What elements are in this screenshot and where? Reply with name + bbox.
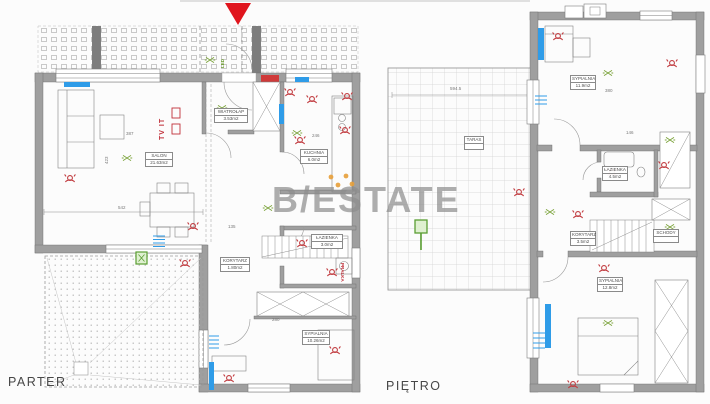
bed	[545, 26, 573, 62]
garden-terrace	[45, 256, 203, 387]
entrance-marker-icon	[225, 3, 251, 25]
floor-label-pietro: PIĘTRO	[386, 379, 442, 393]
radiator-icon	[295, 77, 309, 82]
light-point-icon	[292, 130, 302, 135]
fixture-icon	[188, 222, 199, 230]
fixture-icon	[330, 346, 341, 354]
wardrobe	[257, 292, 349, 316]
coffee-table	[100, 115, 124, 139]
room-label-lazienka-pietro: ŁAZIENKA 4.5m2	[602, 166, 628, 181]
fixture-icon	[573, 210, 584, 218]
chimney	[565, 6, 583, 18]
dining-table	[140, 183, 194, 237]
radiator-icon	[209, 362, 214, 390]
window	[696, 55, 705, 93]
fixture-icon	[285, 88, 296, 96]
radiator-icon	[538, 28, 544, 60]
room-label-taras-pietro: TARAS	[464, 136, 484, 150]
chimney	[584, 4, 606, 18]
radiator-icon	[64, 82, 90, 87]
dimension-text: 423	[104, 156, 109, 164]
dimension-text: 280	[272, 317, 280, 322]
wardrobe	[652, 199, 690, 220]
porch-column	[92, 26, 101, 73]
floorplan-sheet: SALON 21.63m2 WIATROŁAP 3.53m2 KUCHNIA 6…	[0, 0, 710, 404]
stairs	[590, 220, 654, 252]
desk	[212, 356, 246, 371]
floor-label-parter: PARTER	[8, 375, 67, 389]
room-label-sypialnia1-pietro: SYPIALNIA 11.9m2	[570, 75, 596, 90]
wardrobe	[253, 82, 280, 131]
cropped-dimension-line	[180, 0, 530, 2]
window	[56, 69, 160, 82]
radiator-icon	[279, 104, 284, 124]
fixture-icon	[553, 32, 564, 40]
dimension-text: 542	[118, 205, 126, 210]
light-point-icon	[545, 209, 555, 214]
radiator-icon	[545, 304, 551, 348]
porch-column	[252, 26, 261, 73]
fixture-icon	[65, 174, 76, 182]
room-label-schody-pietro: SCHODY	[653, 229, 679, 243]
fixture-icon	[295, 136, 306, 144]
room-label-korytarz-parter: KORYTARZ 1.80m2	[220, 257, 250, 272]
window	[600, 384, 634, 392]
room-label-salon: SALON 21.63m2	[145, 152, 173, 167]
room-label-sypialnia-parter: SYPIALNIA 10.26m2	[302, 330, 330, 345]
room-label-kuchnia: KUCHNIA 6.0m2	[300, 149, 328, 164]
junction-box-icon	[136, 252, 147, 264]
watermark: B/ESTATE	[272, 179, 461, 221]
fixture-icon	[599, 264, 610, 272]
tv-outlet-icon	[172, 108, 180, 134]
bed	[578, 318, 638, 375]
dimension-text: 246	[312, 133, 320, 138]
fixture-icon	[307, 95, 318, 103]
toilet	[637, 167, 645, 177]
sofa	[58, 90, 94, 168]
light-point-icon	[603, 320, 613, 325]
room-label-korytarz-pietro: KORYTARZ 3.5m2	[570, 231, 596, 246]
window	[352, 248, 360, 278]
terrace-drain	[74, 362, 88, 375]
dimension-text: 387	[126, 131, 134, 136]
door-swing-arc	[206, 133, 231, 158]
door-swing-arc	[554, 119, 580, 145]
washer-annotation: PRALKA	[340, 263, 345, 282]
led-annotation: LED	[220, 59, 225, 68]
light-point-icon	[122, 155, 132, 160]
tv-annotation: TV IT	[159, 118, 166, 140]
dimension-text: 594.5	[450, 86, 461, 91]
entrance-door	[222, 73, 256, 82]
dimension-text: 135	[228, 224, 236, 229]
room-label-wiatrolap: WIATROŁAP 3.53m2	[214, 108, 248, 123]
paved-forecourt	[38, 26, 358, 73]
room-label-sypialnia2-pietro: SYPIALNIA 12.8m2	[597, 277, 623, 292]
door-swing-arc	[224, 319, 250, 345]
kitchen-counter	[332, 96, 353, 192]
wardrobe	[655, 280, 688, 383]
desk	[573, 38, 590, 57]
dimension-text: 380	[605, 88, 613, 93]
red-wall-segment	[261, 75, 279, 82]
room-label-lazienka-parter: ŁAZIENKA 3.0m2	[311, 234, 343, 249]
dimension-text: 146	[626, 130, 634, 135]
fixture-icon	[667, 59, 678, 67]
fixture-icon	[224, 374, 235, 382]
door-swing-arc	[543, 257, 568, 282]
door-swing-arc	[583, 162, 601, 180]
light-point-icon	[603, 70, 613, 75]
